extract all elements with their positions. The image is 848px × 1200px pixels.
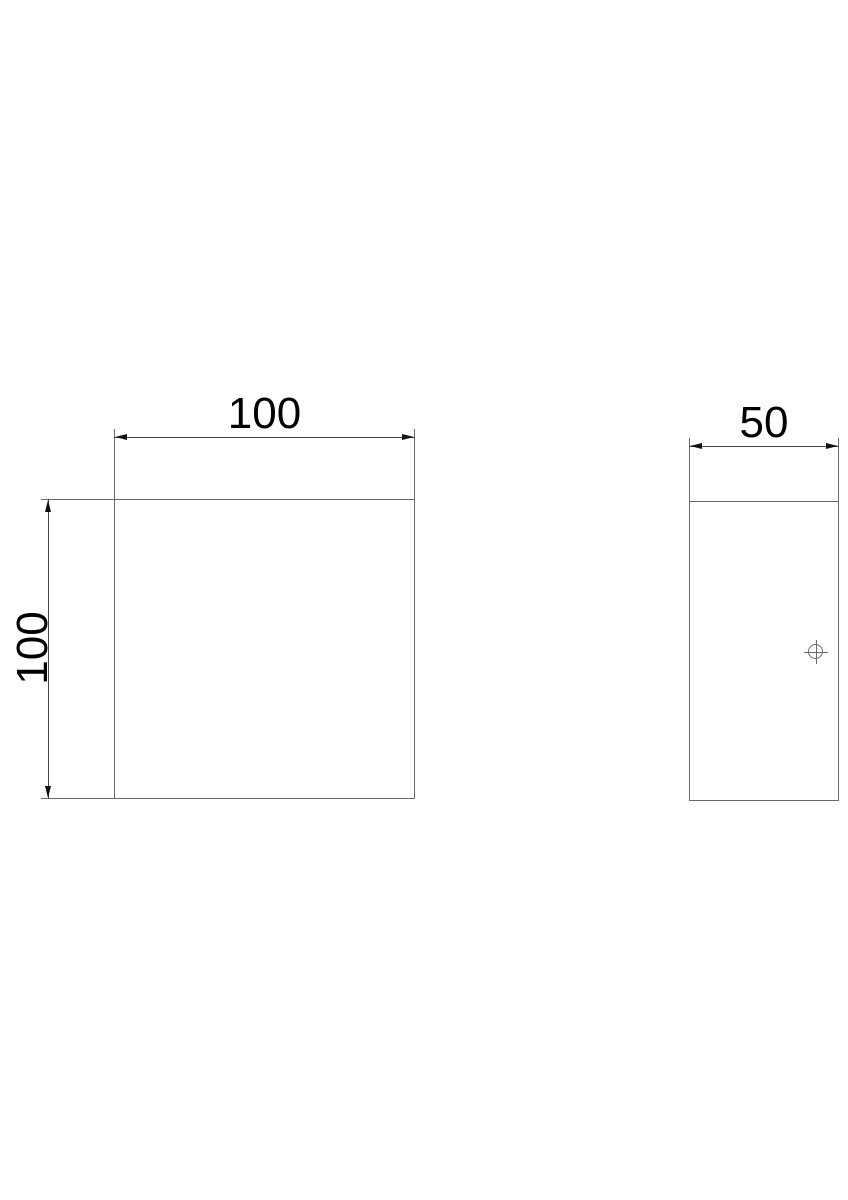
extension-line-right	[414, 429, 415, 499]
drawing-canvas: 100 100 50	[0, 0, 848, 1200]
front-height-label: 100	[11, 608, 55, 688]
front-width-label: 100	[114, 392, 415, 436]
center-mark-vline	[816, 640, 817, 664]
extension-line-bottom	[41, 798, 114, 799]
front-view-outline	[114, 499, 415, 799]
dim-arrow-down-icon	[45, 786, 51, 798]
dim-arrow-up-icon	[45, 500, 51, 512]
extension-line-right	[838, 438, 839, 501]
extension-line-top	[41, 499, 114, 500]
side-width-label: 50	[689, 401, 839, 445]
